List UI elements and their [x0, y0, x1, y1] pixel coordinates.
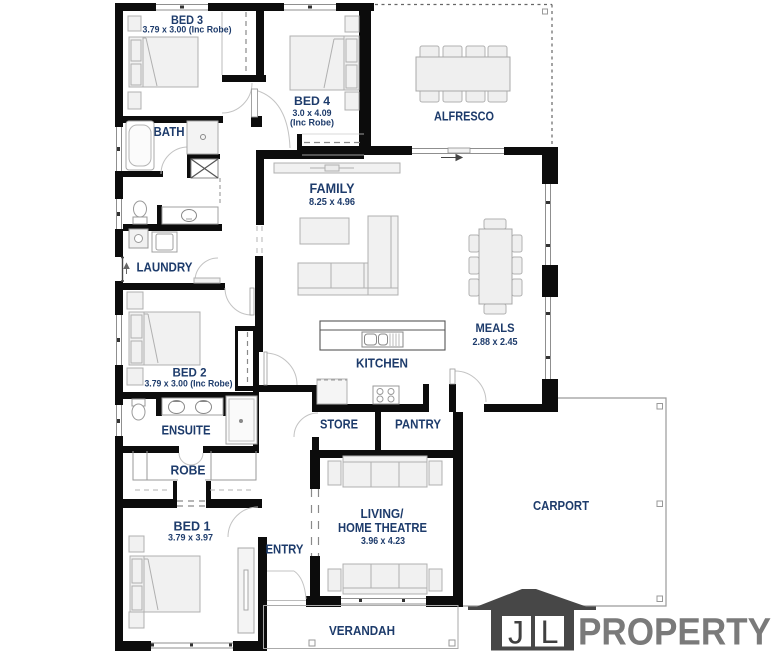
svg-text:3.79 x 3.00 (Inc Robe): 3.79 x 3.00 (Inc Robe)	[145, 379, 233, 390]
svg-text:BED 2: BED 2	[173, 366, 207, 380]
svg-text:CARPORT: CARPORT	[533, 498, 589, 513]
svg-text:PANTRY: PANTRY	[395, 418, 442, 432]
svg-text:HOME THEATRE: HOME THEATRE	[338, 520, 427, 535]
svg-text:L: L	[541, 614, 559, 650]
svg-text:BED 1: BED 1	[174, 519, 211, 534]
svg-text:ENTRY: ENTRY	[266, 543, 305, 557]
svg-text:PROPERTY: PROPERTY	[578, 612, 771, 654]
svg-text:KITCHEN: KITCHEN	[356, 356, 408, 371]
svg-text:FAMILY: FAMILY	[310, 181, 355, 196]
svg-text:ROBE: ROBE	[171, 463, 206, 478]
svg-text:BED 4: BED 4	[294, 94, 330, 108]
svg-text:2.88 x 2.45: 2.88 x 2.45	[473, 337, 518, 348]
svg-text:3.96 x 4.23: 3.96 x 4.23	[361, 536, 405, 547]
svg-text:BATH: BATH	[154, 124, 185, 139]
svg-text:(Inc Robe): (Inc Robe)	[290, 118, 334, 129]
svg-text:ENSUITE: ENSUITE	[162, 423, 211, 438]
svg-text:J: J	[508, 615, 524, 651]
svg-text:LIVING/: LIVING/	[361, 506, 404, 521]
svg-text:VERANDAH: VERANDAH	[329, 623, 395, 638]
svg-text:3.79 x 3.00 (Inc Robe): 3.79 x 3.00 (Inc Robe)	[143, 25, 232, 36]
svg-text:MEALS: MEALS	[476, 321, 515, 335]
svg-text:STORE: STORE	[320, 418, 358, 432]
svg-text:LAUNDRY: LAUNDRY	[137, 260, 193, 275]
svg-text:3.79 x 3.97: 3.79 x 3.97	[168, 533, 213, 544]
svg-text:8.25 x 4.96: 8.25 x 4.96	[309, 196, 355, 208]
svg-text:ALFRESCO: ALFRESCO	[434, 109, 494, 124]
